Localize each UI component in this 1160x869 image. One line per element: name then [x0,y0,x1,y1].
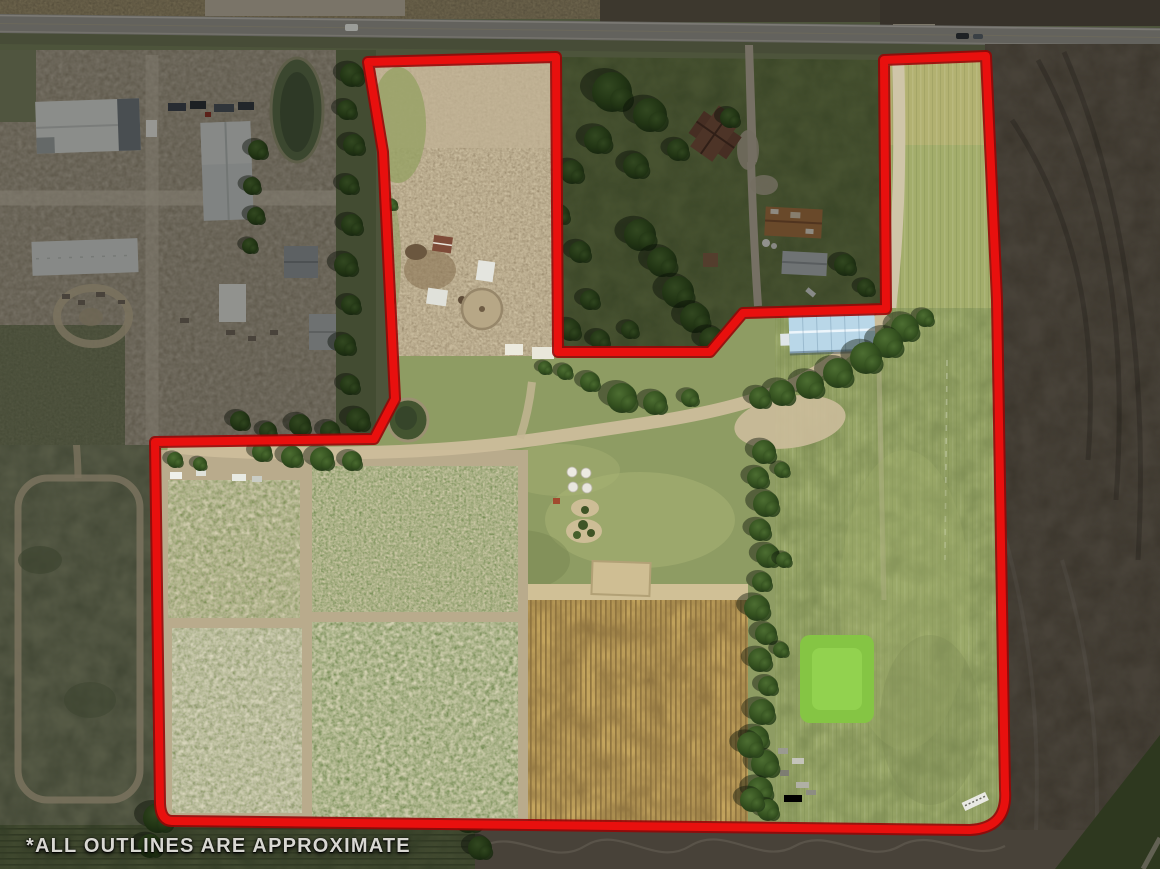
white-trailer-1 [505,344,523,355]
bright-green-plot [800,635,874,723]
riding-arena [591,561,650,596]
corn-stubble-plot [528,584,748,822]
red-implement [553,498,560,504]
plot-a [168,480,300,618]
garden-plots [160,450,528,825]
white-shed-2 [426,288,448,307]
aerial-photo-stage: *ALL OUTLINES ARE APPROXIMATE [0,0,1160,869]
red-shed [432,235,453,253]
plot-b [312,466,518,612]
aerial-photo [0,0,1160,869]
plot-c [172,628,302,813]
white-trailer-2 [532,347,554,359]
disclaimer-text: *ALL OUTLINES ARE APPROXIMATE [26,835,411,858]
white-shed-1 [476,260,496,282]
plot-d [312,622,518,818]
